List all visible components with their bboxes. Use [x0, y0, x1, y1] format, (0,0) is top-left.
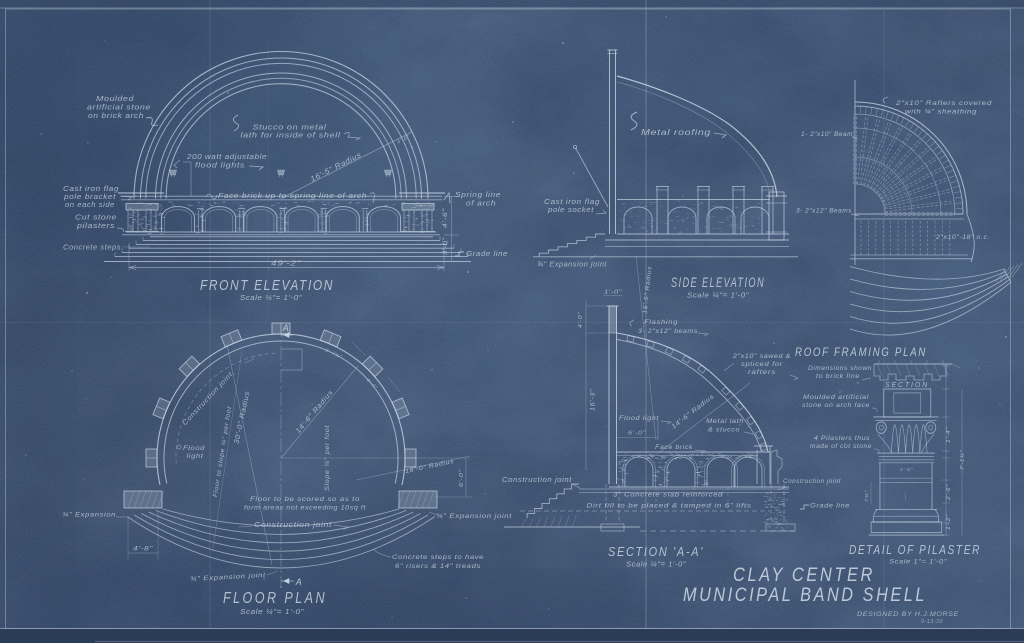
svg-text:Construction joint: Construction joint [783, 478, 842, 485]
svg-text:1- 2"x10" Beam: 1- 2"x10" Beam [801, 131, 853, 138]
svg-text:4'-6": 4'-6" [443, 207, 449, 228]
svg-text:1'-0": 1'-0" [604, 290, 623, 296]
svg-text:3- 2"x12" beams: 3- 2"x12" beams [638, 329, 698, 335]
svg-text:lath for inside of shell: lath for inside of shell [241, 131, 341, 140]
svg-text:A: A [295, 577, 303, 587]
svg-text:of arch: of arch [466, 199, 496, 208]
svg-text:FLOOR PLAN: FLOOR PLAN [223, 590, 327, 607]
svg-text:flood lights: flood lights [195, 161, 245, 170]
svg-text:3- 2"x12" Beams: 3- 2"x12" Beams [796, 208, 852, 215]
svg-text:1'-6": 1'-6" [900, 467, 913, 472]
svg-text:6'-0": 6'-0" [459, 468, 465, 487]
svg-text:Grade line: Grade line [810, 503, 850, 510]
svg-text:4 Pilasters thus: 4 Pilasters thus [814, 436, 870, 442]
svg-text:¾" Expansion joint: ¾" Expansion joint [537, 262, 608, 269]
svg-text:1'-2": 1'-2" [946, 514, 952, 530]
svg-text:FRONT ELEVATION: FRONT ELEVATION [200, 277, 334, 294]
svg-text:SECTION 'A-A': SECTION 'A-A' [608, 544, 704, 559]
svg-text:Face brick up to spring line o: Face brick up to spring line of arch [218, 191, 367, 200]
svg-text:Construction joint: Construction joint [502, 477, 573, 484]
svg-text:form areas not exceeding 10sq: form areas not exceeding 10sq ft [244, 505, 367, 512]
svg-text:Scale ¼"= 1'-0": Scale ¼"= 1'-0" [240, 609, 304, 616]
svg-text:ROOF FRAMING PLAN: ROOF FRAMING PLAN [795, 347, 927, 359]
svg-text:7'-1¾": 7'-1¾" [960, 450, 966, 470]
svg-text:MUNICIPAL BAND SHELL: MUNICIPAL BAND SHELL [683, 585, 927, 606]
svg-text:6'-0": 6'-0" [628, 431, 647, 437]
svg-text:on brick arch: on brick arch [88, 111, 144, 120]
svg-text:stone on arch face: stone on arch face [802, 403, 870, 409]
svg-text:& stucco: & stucco [708, 427, 740, 434]
svg-text:Scale ¼"= 1'-0": Scale ¼"= 1'-0" [626, 562, 686, 569]
svg-text:Dimensions shown: Dimensions shown [808, 366, 872, 372]
svg-text:¾" Expansion joint: ¾" Expansion joint [436, 513, 513, 520]
svg-text:¾" Expansion: ¾" Expansion [62, 512, 116, 519]
svg-text:49'-2": 49'-2" [271, 261, 301, 268]
svg-text:9-13-30: 9-13-30 [921, 619, 943, 625]
svg-text:DETAIL OF PILASTER: DETAIL OF PILASTER [849, 543, 981, 557]
svg-text:2"x10" Rafters covered: 2"x10" Rafters covered [895, 100, 992, 107]
svg-text:light: light [187, 453, 205, 460]
svg-text:1'-4": 1'-4" [946, 427, 952, 443]
svg-text:pole bracket: pole bracket [63, 194, 117, 201]
svg-text:Concrete steps to have: Concrete steps to have [392, 554, 484, 561]
svg-text:2"x10"-18" o.c.: 2"x10"-18" o.c. [935, 235, 990, 241]
svg-text:A: A [282, 323, 290, 333]
svg-text:Face brick: Face brick [655, 444, 693, 451]
svg-text:16'-3": 16'-3" [591, 389, 597, 411]
svg-text:made of cut stone: made of cut stone [810, 444, 872, 450]
svg-text:Concrete steps: Concrete steps [63, 243, 121, 252]
svg-text:Cast iron flag: Cast iron flag [544, 199, 600, 206]
svg-text:Dirt fill to be placed & tampe: Dirt fill to be placed & tamped in 6" li… [587, 503, 752, 510]
svg-text:Metal lath: Metal lath [706, 418, 744, 425]
svg-text:Cast iron flag: Cast iron flag [63, 186, 119, 193]
svg-text:DESIGNED BY H.J.MORSE: DESIGNED BY H.J.MORSE [857, 612, 960, 618]
svg-text:2'-6": 2'-6" [946, 484, 952, 501]
svg-text:6" risers & 14" treads: 6" risers & 14" treads [395, 563, 481, 570]
svg-text:pilasters: pilasters [76, 221, 115, 230]
svg-text:2"x10" sawed &: 2"x10" sawed & [732, 354, 791, 360]
svg-text:Moulded artificial: Moulded artificial [803, 395, 869, 401]
svg-text:SECTION: SECTION [885, 380, 929, 389]
svg-text:4'-8": 4'-8" [133, 547, 154, 553]
svg-text:3'-0": 3'-0" [443, 237, 449, 255]
svg-text:spliced for: spliced for [741, 362, 784, 368]
svg-text:SIDE ELEVATION: SIDE ELEVATION [671, 275, 765, 290]
svg-text:Flood light: Flood light [619, 415, 660, 422]
svg-text:3" Concrete slab reinforced: 3" Concrete slab reinforced [613, 492, 723, 499]
svg-text:Metal roofing: Metal roofing [641, 128, 711, 137]
svg-text:CLAY CENTER: CLAY CENTER [733, 565, 875, 586]
svg-text:Grade line: Grade line [466, 251, 508, 258]
svg-text:Scale ¼"= 1'-0": Scale ¼"= 1'-0" [240, 295, 302, 302]
svg-text:on each side: on each side [65, 202, 115, 209]
svg-text:Flood: Flood [183, 445, 205, 452]
svg-text:4'-0": 4'-0" [578, 311, 584, 328]
svg-text:Scale ¼"= 1'-0": Scale ¼"= 1'-0" [687, 293, 749, 300]
svg-text:Floor to be scored so as to: Floor to be scored so as to [250, 496, 360, 503]
svg-text:Flashing: Flashing [644, 320, 678, 326]
svg-text:rafters: rafters [748, 370, 776, 376]
svg-text:7¼": 7¼" [864, 490, 869, 502]
svg-text:with ¾" sheathing: with ¾" sheathing [905, 109, 977, 116]
svg-text:Scale 1"= 1'-0": Scale 1"= 1'-0" [889, 559, 947, 566]
svg-text:pole socket: pole socket [547, 207, 595, 214]
svg-text:to brick line: to brick line [816, 374, 860, 380]
